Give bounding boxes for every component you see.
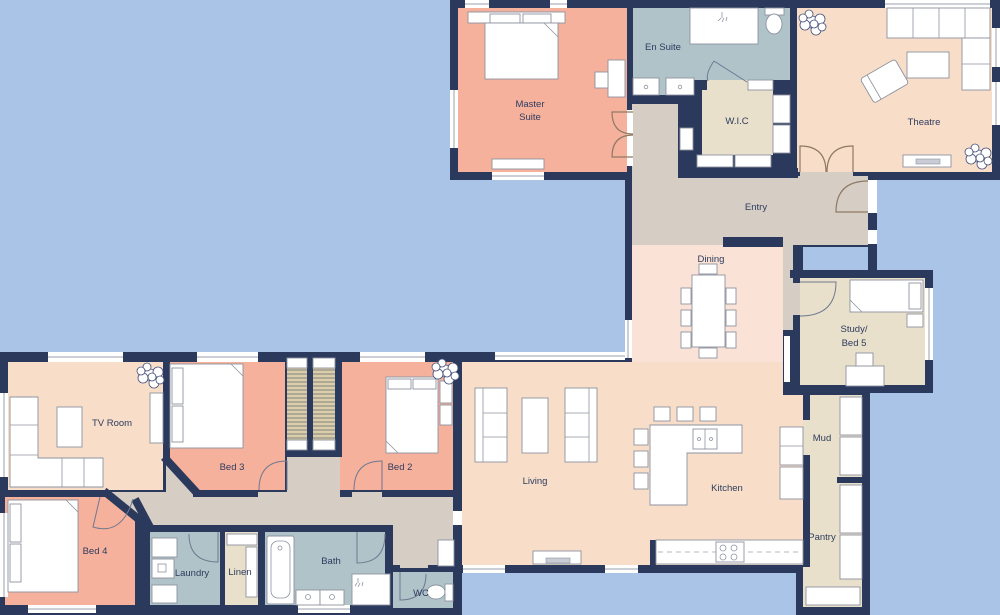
wardrobe-shelf	[735, 155, 771, 167]
desk	[846, 366, 884, 386]
room-label-living: Living	[523, 476, 548, 487]
chair	[699, 348, 717, 358]
chair	[681, 332, 691, 348]
cooktop	[716, 542, 744, 562]
room-label-master-2: Suite	[519, 112, 541, 123]
cabinet	[840, 535, 862, 579]
furniture-bed3	[170, 364, 243, 448]
room-label-bath: Bath	[321, 556, 341, 567]
toilet-icon	[427, 585, 445, 599]
room-label-wc: WC	[413, 588, 429, 599]
vanity-sink	[666, 78, 694, 95]
room-label-linen: Linen	[228, 567, 251, 578]
room-label-master-1: Master	[515, 99, 544, 110]
pillow	[523, 14, 551, 23]
sofa	[475, 388, 507, 462]
floor-plan-page: Master Suite En Suite W.I.C Theatre Entr…	[0, 0, 1000, 615]
coffee-table	[57, 407, 82, 447]
vanity-sink	[633, 78, 659, 95]
pillow	[909, 283, 921, 309]
shelf	[227, 534, 257, 545]
wardrobe-shelf	[680, 128, 693, 150]
shower	[690, 8, 758, 44]
wardrobe-shelf	[773, 125, 790, 153]
toilet-icon	[766, 14, 782, 34]
pillow	[413, 379, 436, 389]
room-label-bed2: Bed 2	[388, 462, 413, 473]
pillow	[172, 406, 183, 442]
sofa	[887, 8, 990, 38]
room-label-entry: Entry	[745, 202, 767, 213]
stool	[654, 407, 670, 421]
laundry-sink	[152, 559, 174, 578]
cabinet	[840, 485, 862, 533]
chair	[726, 332, 736, 348]
wardrobe-shelf	[773, 95, 790, 123]
dryer	[152, 585, 177, 603]
stool	[677, 407, 693, 421]
stool	[634, 451, 648, 467]
pillow	[490, 14, 520, 23]
wardrobe-shelf	[748, 80, 773, 90]
room-label-theatre: Theatre	[908, 117, 941, 128]
furniture-bed4	[8, 500, 78, 592]
stool	[634, 473, 648, 489]
vanity-sink	[320, 590, 344, 605]
room-label-dining: Dining	[698, 254, 725, 265]
room-label-wic: W.I.C	[725, 116, 748, 127]
chair	[681, 310, 691, 326]
pillow	[388, 379, 411, 389]
cabinet	[840, 437, 862, 475]
floor-plan-svg: Master Suite En Suite W.I.C Theatre Entr…	[0, 0, 1000, 615]
tv-cabinet	[150, 393, 163, 443]
chair	[856, 353, 873, 366]
room-label-bed3: Bed 3	[220, 462, 245, 473]
room-label-bed4: Bed 4	[83, 546, 108, 557]
nightstand	[440, 405, 452, 425]
room-label-tv-room: TV Room	[92, 418, 132, 429]
coffee-table	[522, 398, 548, 453]
chair	[699, 264, 717, 274]
toilet-tank	[445, 584, 453, 601]
room-label-pantry: Pantry	[808, 532, 836, 543]
cabinet	[840, 397, 862, 435]
room-living-kitchen	[462, 362, 803, 565]
chair	[726, 310, 736, 326]
chair	[681, 288, 691, 304]
vanity-sink	[296, 590, 320, 605]
stool	[634, 429, 648, 445]
room-label-kitchen: Kitchen	[711, 483, 743, 494]
bench	[492, 159, 544, 169]
cabinet	[438, 540, 454, 566]
sofa	[565, 388, 597, 462]
chair	[595, 72, 608, 88]
bed-icon	[485, 23, 558, 79]
wardrobe-shelf	[697, 155, 733, 167]
room-label-study-2: Bed 5	[842, 338, 867, 349]
dresser	[608, 60, 625, 97]
coffee-table	[907, 52, 949, 78]
pillow	[10, 504, 21, 542]
stool	[700, 407, 716, 421]
chair	[726, 288, 736, 304]
room-label-en-suite: En Suite	[645, 42, 681, 53]
bench	[806, 587, 860, 605]
dining-table	[692, 275, 725, 347]
cabinet	[780, 467, 803, 499]
room-label-mud: Mud	[813, 433, 831, 444]
nightstand	[907, 314, 923, 327]
pillow	[10, 544, 21, 582]
nightstand	[440, 381, 452, 403]
furniture-laundry	[152, 538, 177, 603]
room-label-study-1: Study/	[841, 324, 868, 335]
room-label-laundry: Laundry	[175, 568, 210, 579]
washer	[152, 538, 177, 557]
pillow	[172, 368, 183, 404]
